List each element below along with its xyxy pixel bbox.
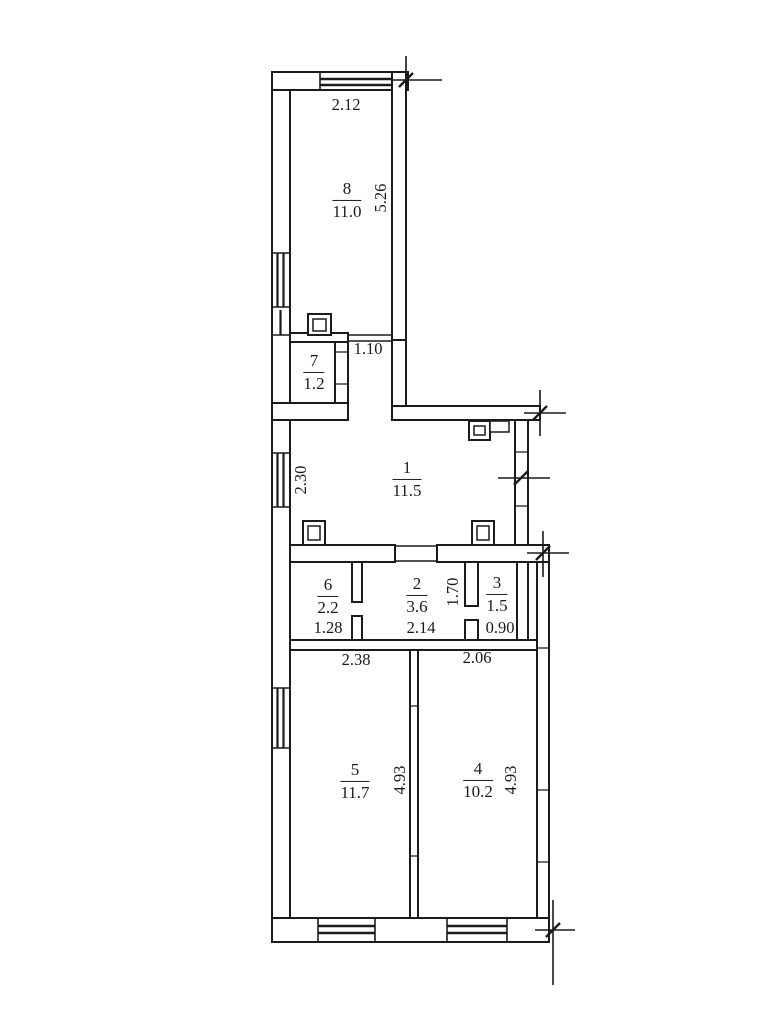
wall-room7-right (335, 342, 348, 403)
dimension-corridor-width: 1.10 (354, 339, 383, 359)
room-area: 1.2 (303, 373, 324, 394)
wall-room1-top (392, 406, 540, 420)
vent-shaft-icon (472, 521, 494, 545)
dimension-room2-width: 2.14 (407, 618, 436, 638)
floor-plan-drawing (0, 0, 768, 1024)
vent-duct-icon (469, 421, 509, 440)
room-3-label: 3 1.5 (486, 573, 507, 615)
wall-partition-5-4 (410, 650, 418, 918)
wall-partition-2-3-upper (465, 562, 478, 606)
room-area: 11.5 (392, 480, 421, 501)
room-4-label: 4 10.2 (463, 759, 493, 801)
room-number: 8 (332, 179, 361, 201)
vent-shaft-icon (308, 314, 331, 335)
dimension-room2-depth: 1.70 (443, 578, 463, 607)
room-number: 1 (392, 458, 421, 480)
room-area: 2.2 (317, 597, 338, 618)
room-area: 3.6 (406, 596, 427, 617)
room-7-label: 7 1.2 (303, 351, 324, 393)
wall-partition-2-3-lower (465, 620, 478, 640)
wall-partition-6-2-lower (352, 616, 362, 640)
room-area: 10.2 (463, 781, 493, 802)
dimension-room3-width: 0.90 (486, 618, 515, 638)
dimension-room6-width: 1.28 (314, 618, 343, 638)
wall-room7-bottom (272, 403, 348, 420)
dimension-room5-depth: 4.93 (390, 766, 410, 795)
dimension-tick-icon (524, 390, 566, 436)
room-number: 6 (317, 575, 338, 597)
room-number: 7 (303, 351, 324, 373)
room-number: 4 (463, 759, 493, 781)
walls (272, 72, 549, 942)
room-area: 11.0 (332, 201, 361, 222)
wall-row-divider (290, 640, 549, 650)
wall-room3-right (517, 562, 528, 640)
dimension-room5-width: 2.38 (342, 650, 371, 670)
wall-partition-6-2-upper (352, 562, 362, 602)
room-6-label: 6 2.2 (317, 575, 338, 617)
wall-right-outer (537, 562, 549, 942)
dimension-room1-left: 2.30 (291, 466, 311, 495)
room-2-label: 2 3.6 (406, 574, 427, 616)
room-5-label: 5 11.7 (340, 760, 369, 802)
dimension-room4-depth: 4.93 (501, 766, 521, 795)
vent-shaft-icon (303, 521, 325, 545)
dimension-room4-width: 2.06 (463, 648, 492, 668)
room-8-label: 8 11.0 (332, 179, 361, 221)
room-area: 1.5 (486, 595, 507, 616)
dimension-room8-depth: 5.26 (371, 184, 391, 213)
floor-plan-page: 8 11.0 7 1.2 1 11.5 6 2.2 2 3.6 3 1.5 5 … (0, 0, 768, 1024)
wall-room8-right (392, 72, 406, 340)
wall-corridor-right (392, 340, 406, 406)
room-number: 3 (486, 573, 507, 595)
room-number: 5 (340, 760, 369, 782)
room-1-label: 1 11.5 (392, 458, 421, 500)
opening-room1-door (395, 546, 437, 561)
room-area: 11.7 (340, 782, 369, 803)
wall-room1-bottom-left (290, 545, 395, 562)
dimension-room8-width: 2.12 (332, 95, 361, 115)
wall-top (272, 72, 408, 90)
room-number: 2 (406, 574, 427, 596)
